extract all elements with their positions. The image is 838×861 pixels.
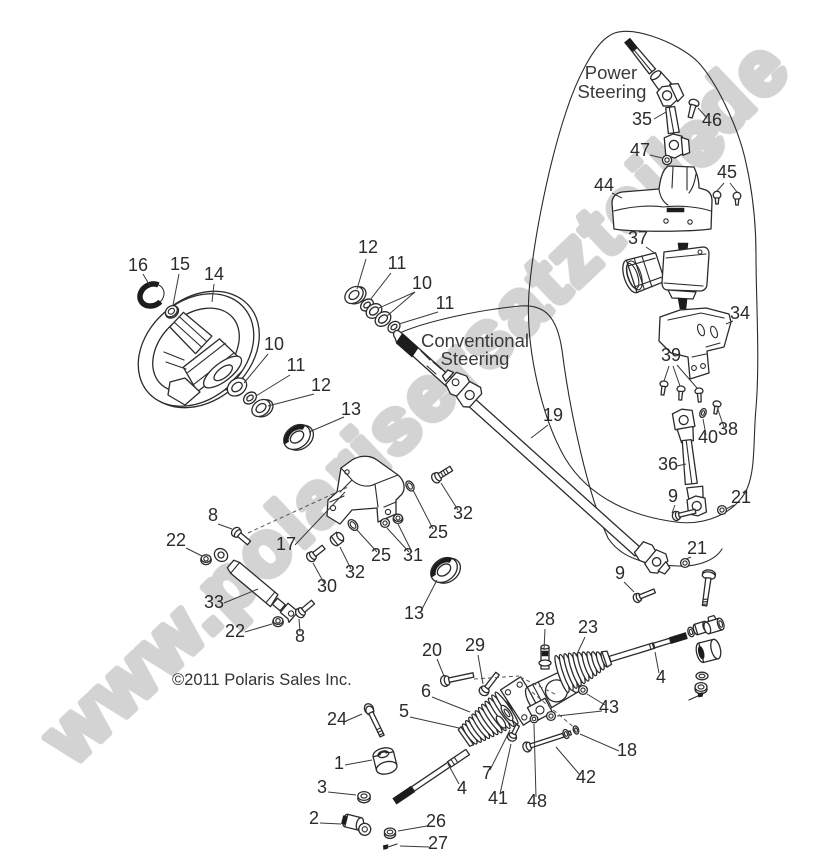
svg-text:34: 34 (730, 303, 750, 323)
svg-text:14: 14 (204, 264, 224, 284)
svg-text:27: 27 (428, 833, 448, 853)
svg-text:13: 13 (404, 603, 424, 623)
svg-text:45: 45 (717, 162, 737, 182)
svg-text:21: 21 (731, 487, 751, 507)
svg-text:38: 38 (718, 419, 738, 439)
svg-text:30: 30 (317, 576, 337, 596)
svg-text:33: 33 (204, 592, 224, 612)
svg-text:11: 11 (388, 253, 407, 273)
svg-text:9: 9 (615, 563, 625, 583)
svg-text:4: 4 (656, 667, 666, 687)
svg-text:10: 10 (412, 273, 432, 293)
svg-text:21: 21 (687, 538, 707, 558)
svg-text:15: 15 (170, 254, 190, 274)
svg-text:41: 41 (488, 788, 508, 808)
svg-text:10: 10 (264, 334, 284, 354)
svg-text:36: 36 (658, 454, 678, 474)
svg-text:29: 29 (465, 635, 485, 655)
svg-text:24: 24 (327, 709, 347, 729)
svg-text:48: 48 (527, 791, 547, 811)
svg-text:11: 11 (287, 355, 306, 375)
svg-text:26: 26 (426, 811, 446, 831)
svg-text:3: 3 (317, 777, 327, 797)
svg-text:9: 9 (668, 486, 678, 506)
svg-text:17: 17 (276, 534, 296, 554)
svg-text:47: 47 (630, 140, 650, 160)
svg-text:4: 4 (457, 778, 467, 798)
svg-text:22: 22 (225, 621, 245, 641)
svg-text:8: 8 (208, 505, 218, 525)
svg-text:40: 40 (698, 427, 718, 447)
svg-text:28: 28 (535, 609, 555, 629)
svg-text:39: 39 (661, 345, 681, 365)
svg-text:37: 37 (628, 228, 648, 248)
svg-text:7: 7 (482, 763, 492, 783)
svg-text:46: 46 (702, 110, 722, 130)
svg-text:16: 16 (128, 255, 148, 275)
svg-text:Steering: Steering (441, 348, 510, 369)
svg-text:32: 32 (345, 562, 365, 582)
svg-text:13: 13 (341, 399, 361, 419)
svg-text:44: 44 (594, 175, 614, 195)
svg-text:©2011 Polaris Sales Inc.: ©2011 Polaris Sales Inc. (172, 671, 352, 689)
svg-text:5: 5 (399, 701, 409, 721)
svg-text:35: 35 (632, 109, 652, 129)
svg-text:20: 20 (422, 640, 442, 660)
svg-text:Power: Power (585, 62, 637, 83)
svg-text:6: 6 (421, 681, 431, 701)
svg-text:12: 12 (358, 237, 378, 257)
svg-text:22: 22 (166, 530, 186, 550)
svg-text:12: 12 (311, 375, 331, 395)
svg-text:11: 11 (436, 293, 455, 313)
svg-text:42: 42 (576, 767, 596, 787)
svg-text:1: 1 (334, 753, 344, 773)
svg-text:23: 23 (578, 617, 598, 637)
svg-text:19: 19 (543, 405, 563, 425)
svg-text:Steering: Steering (578, 81, 647, 102)
svg-text:2: 2 (309, 808, 319, 828)
svg-text:43: 43 (599, 697, 619, 717)
svg-text:18: 18 (617, 740, 637, 760)
